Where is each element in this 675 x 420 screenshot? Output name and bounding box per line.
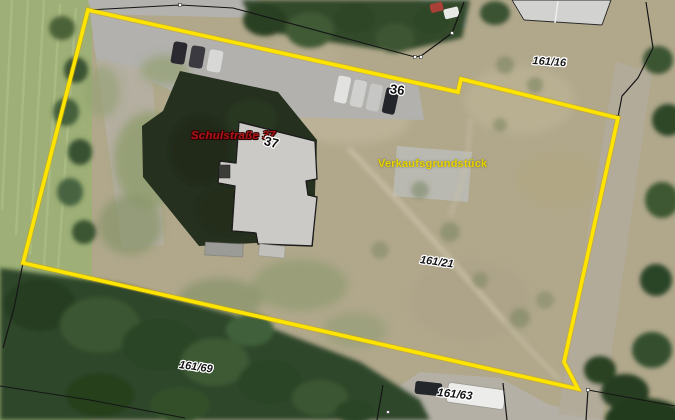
aerial-photo-layer (0, 0, 675, 420)
cadastral-aerial-map: Schulstraße 37 37 36 Verkaufsgrundstück … (0, 0, 675, 420)
street-label: Schulstraße 37 (191, 130, 276, 142)
house-number-36: 36 (389, 82, 405, 97)
parcel-label-161-16: 161/16 (532, 55, 566, 68)
sale-property-label: Verkaufsgrundstück (378, 158, 487, 169)
